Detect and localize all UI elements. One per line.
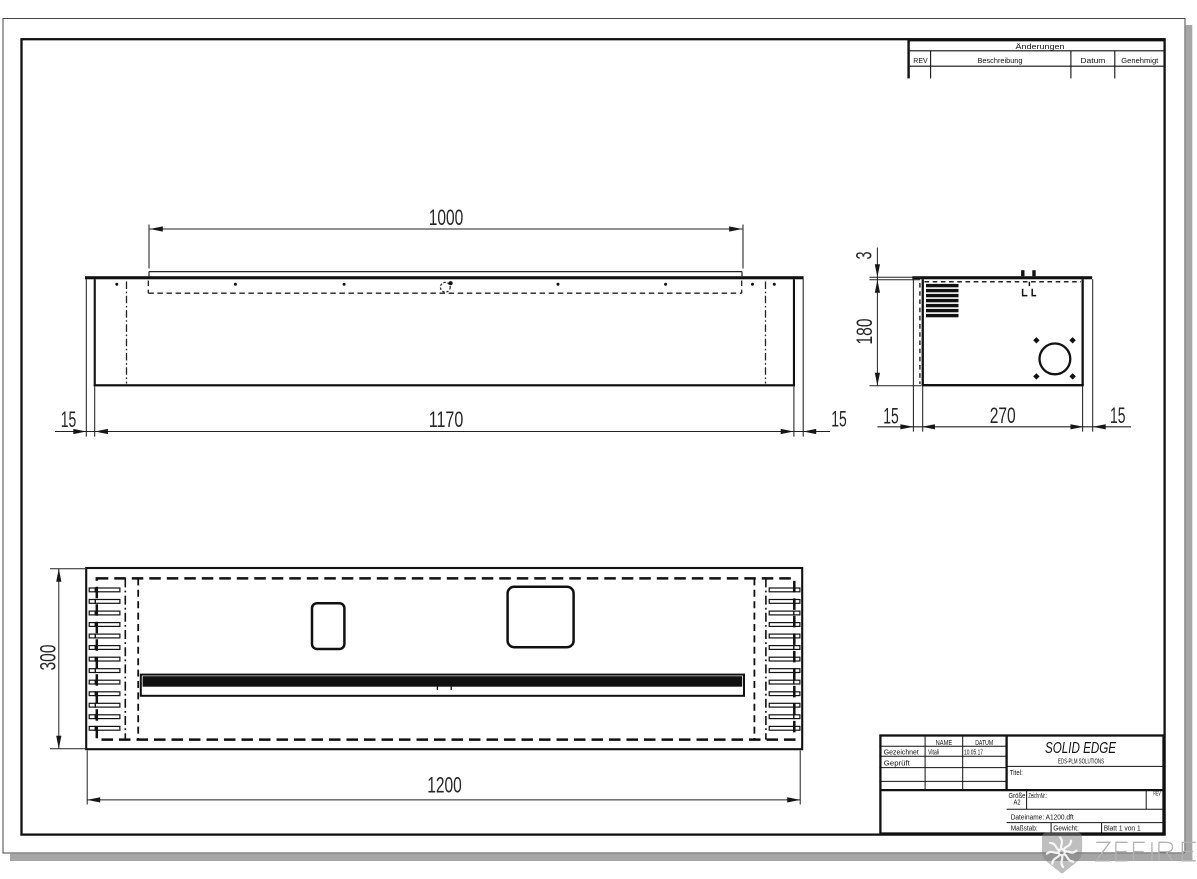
svg-text:Dateiname: A1200.dft: Dateiname: A1200.dft [1011, 812, 1075, 821]
svg-text:15: 15 [883, 404, 899, 429]
svg-text:15: 15 [831, 407, 847, 432]
svg-text:ZeichnNr.:: ZeichnNr.: [1028, 791, 1047, 800]
svg-text:REV: REV [913, 56, 928, 65]
svg-text:Genehmigt: Genehmigt [1121, 56, 1159, 65]
svg-text:REV: REV [1153, 791, 1161, 798]
svg-text:1170: 1170 [429, 407, 464, 432]
svg-text:Beschreibung: Beschreibung [978, 56, 1023, 65]
svg-text:1200: 1200 [427, 773, 462, 798]
svg-text:Titel:: Titel: [1010, 768, 1023, 777]
svg-text:A2: A2 [1014, 797, 1021, 806]
svg-text:Datum: Datum [1080, 56, 1105, 65]
svg-text:NAME: NAME [936, 738, 953, 747]
svg-text:EDS-PLM SOLUTIONS: EDS-PLM SOLUTIONS [1058, 759, 1104, 766]
svg-text:Vitali: Vitali [928, 748, 939, 757]
svg-text:10.05.17: 10.05.17 [964, 748, 983, 757]
svg-text:3: 3 [852, 252, 877, 260]
svg-text:Gewicht:: Gewicht: [1053, 824, 1079, 833]
svg-text:15: 15 [1110, 403, 1126, 428]
svg-text:Änderungen: Änderungen [1016, 42, 1065, 51]
svg-text:Gezeichnet: Gezeichnet [884, 748, 920, 757]
svg-text:1000: 1000 [429, 205, 464, 230]
svg-text:Blatt 1 von 1: Blatt 1 von 1 [1104, 824, 1141, 833]
svg-text:270: 270 [990, 403, 1016, 428]
svg-text:Maßstab:: Maßstab: [1011, 824, 1038, 833]
svg-text:15: 15 [61, 407, 77, 432]
svg-text:180: 180 [852, 319, 877, 345]
svg-text:SOLID EDGE: SOLID EDGE [1045, 740, 1116, 757]
svg-text:300: 300 [35, 645, 60, 671]
svg-text:DATUM: DATUM [975, 738, 993, 747]
svg-text:Geprüft: Geprüft [884, 759, 911, 768]
